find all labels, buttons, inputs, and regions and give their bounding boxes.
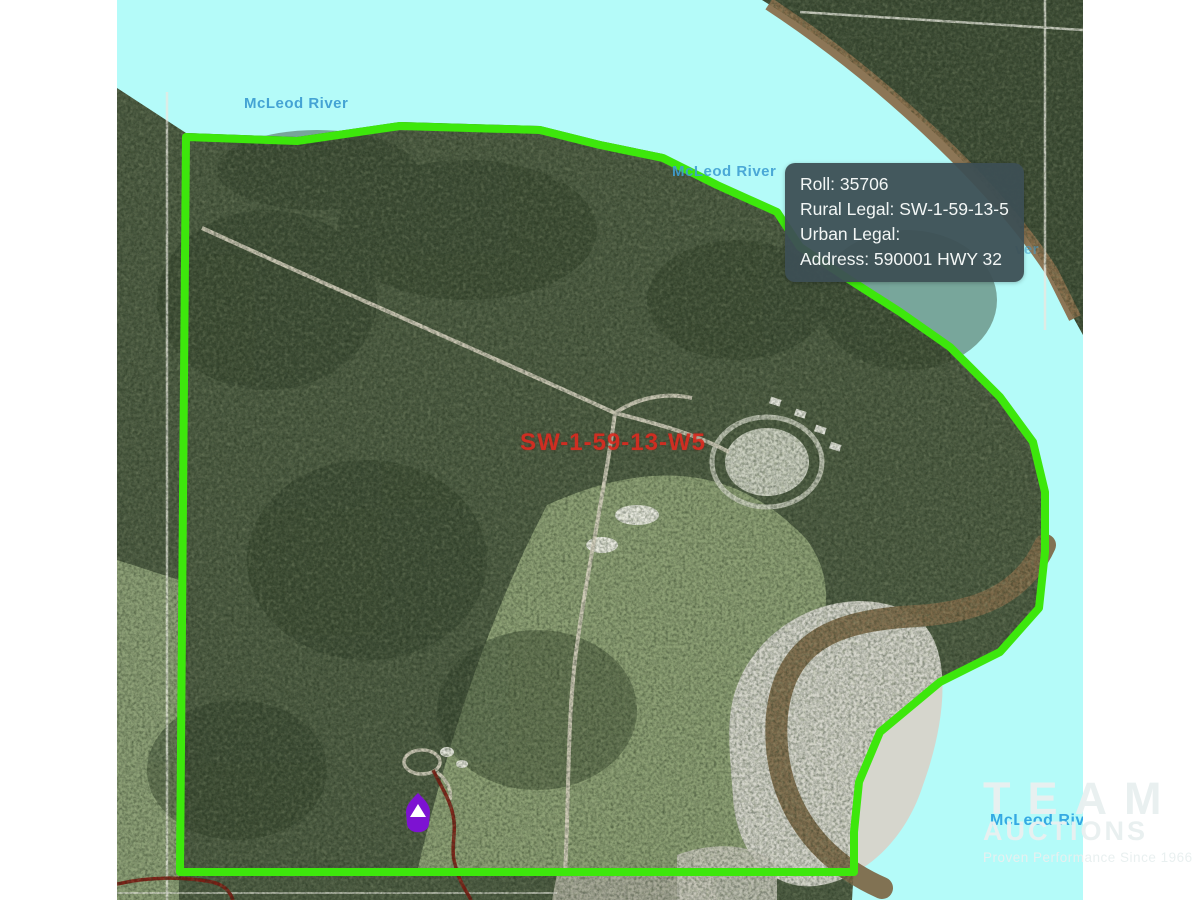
- house-marker-icon[interactable]: [403, 790, 433, 838]
- aerial-map-canvas[interactable]: McLeod River McLeod River ver McLeod Riv…: [117, 0, 1083, 900]
- parcel-info-tooltip: Roll: 35706 Rural Legal: SW-1-59-13-5 Ur…: [785, 163, 1024, 282]
- river-label-top-left: McLeod River: [244, 95, 348, 112]
- tooltip-rural-legal: Rural Legal: SW-1-59-13-5: [800, 197, 1009, 222]
- right-margin: [1083, 0, 1200, 900]
- page: McLeod River McLeod River ver McLeod Riv…: [0, 0, 1200, 900]
- river-label-near-tooltip: McLeod River: [672, 163, 776, 180]
- parcel-legal-label: SW-1-59-13-W5: [520, 429, 706, 457]
- tooltip-roll: Roll: 35706: [800, 172, 1009, 197]
- left-margin: [0, 0, 117, 900]
- tooltip-address: Address: 590001 HWY 32: [800, 247, 1009, 272]
- tooltip-urban-legal: Urban Legal:: [800, 222, 1009, 247]
